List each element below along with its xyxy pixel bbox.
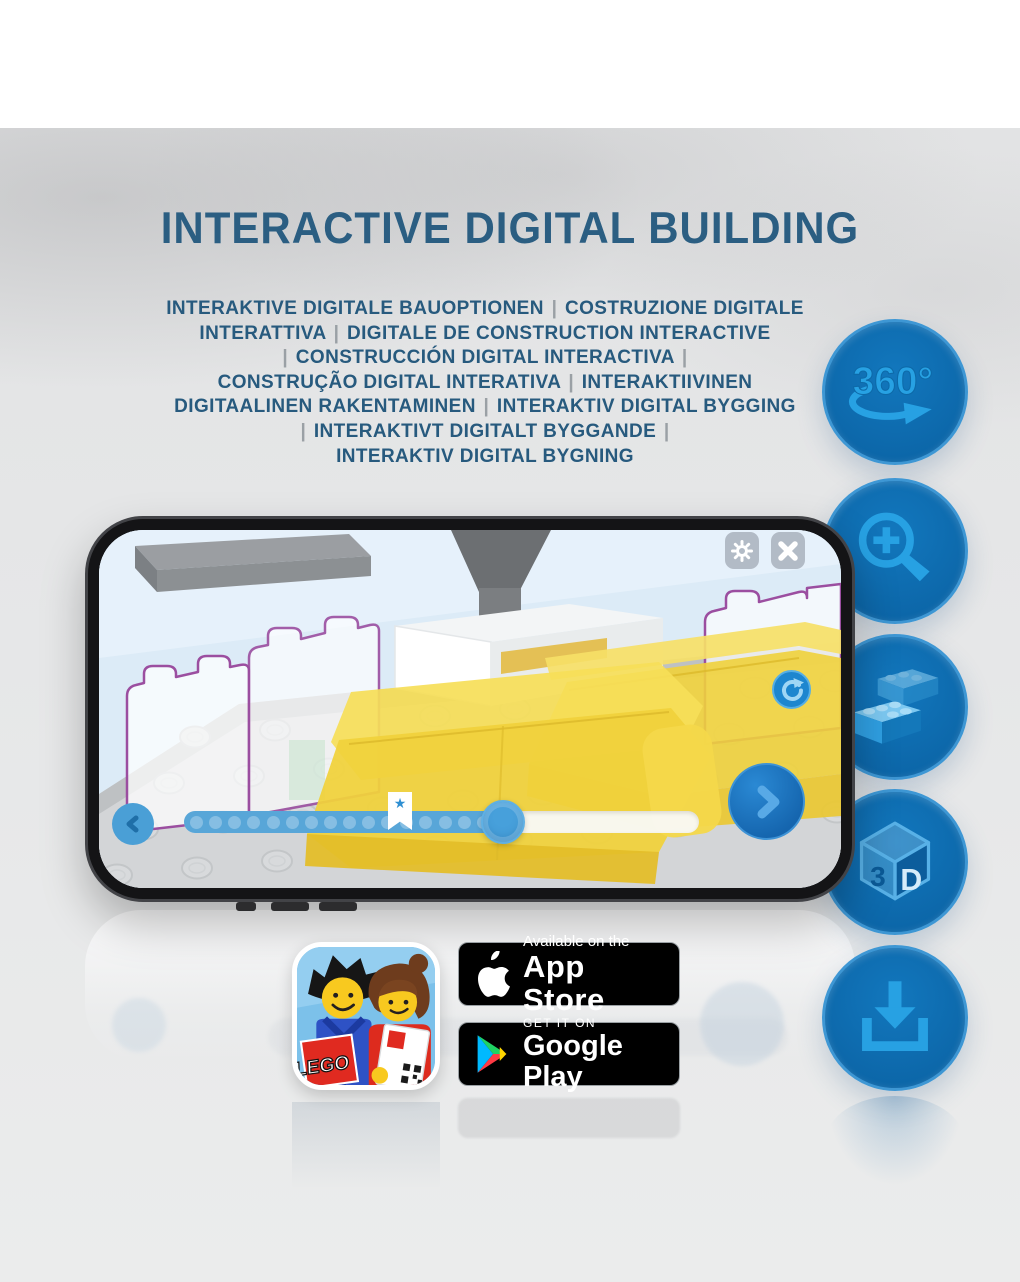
progress-dot [458,816,471,829]
chevron-left-icon [124,815,142,833]
progress-dot [209,816,222,829]
progress-dot [190,816,203,829]
subtitle-line: INTERATTIVA | DIGITALE DE CONSTRUCTION I… [0,322,970,347]
svg-text:360°: 360° [853,360,933,403]
rotate-icon [778,676,805,703]
phone-side-button [319,902,357,911]
lego-app-icon-art: LEGO [297,947,435,1085]
subtitle-line: | CONSTRUCCIÓN DIGITAL INTERACTIVA | [0,346,970,371]
play-triangle-icon [473,1033,511,1075]
progress-dot [324,816,337,829]
progress-dot [419,816,432,829]
settings-button[interactable] [725,532,759,569]
apple-logo-icon [473,951,511,997]
google-play-badge[interactable]: GET IT ON Google Play [458,1022,680,1086]
app-store-tagline: Available on the [523,933,665,950]
phone-side-button [271,902,309,911]
progress-dot [247,816,260,829]
progress-handle[interactable] [481,800,525,844]
360-rotation-icon: 360° [822,319,968,465]
subtitle-line: INTERAKTIV DIGITAL BYGNING [0,445,970,470]
poster: INTERACTIVE DIGITAL BUILDING INTERAKTIVE… [0,0,1020,1282]
progress-dot [343,816,356,829]
progress-track[interactable]: ★ [184,811,699,833]
phone-screen: ★ [99,530,841,888]
close-button[interactable] [771,532,805,569]
phone-side-button [236,902,256,911]
phone-frame: ★ [85,516,855,902]
progress-dot [267,816,280,829]
next-step-button[interactable] [728,763,805,840]
subtitle-line: INTERAKTIVE DIGITALE BAUOPTIONEN | COSTR… [0,297,970,322]
close-icon [776,539,800,563]
progress-dot [439,816,452,829]
svg-text:3: 3 [870,861,886,892]
progress-dot [286,816,299,829]
lego-3d-scene [99,530,841,888]
progress-dot [228,816,241,829]
download-icon [822,945,968,1091]
svg-text:D: D [900,864,922,897]
google-play-name: Google Play [523,1031,665,1093]
subtitle-line: | INTERAKTIVT DIGITALT BYGGANDE | [0,420,970,445]
chevron-right-icon [750,785,784,819]
page-title: INTERACTIVE DIGITAL BUILDING [0,203,1020,254]
rotate-view-button[interactable] [772,670,811,709]
progress-fill [184,811,515,833]
gear-icon [730,539,754,563]
app-store-badge[interactable]: Available on the App Store [458,942,680,1006]
previous-step-button[interactable] [112,803,154,845]
lego-app-icon[interactable]: LEGO [292,942,440,1090]
progress-dot [305,816,318,829]
progress-dot [362,816,375,829]
google-play-tagline: GET IT ON [523,1015,665,1031]
app-store-name: App Store [523,950,665,1016]
